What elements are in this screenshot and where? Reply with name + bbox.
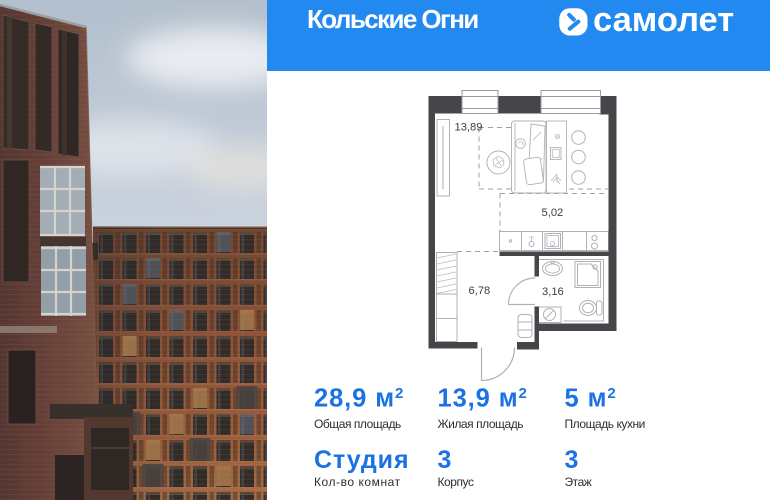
svg-text:13,89: 13,89	[455, 122, 483, 134]
svg-text:5,02: 5,02	[542, 207, 564, 219]
svg-text:3,16: 3,16	[542, 286, 564, 298]
svg-text:6,78: 6,78	[469, 285, 491, 297]
